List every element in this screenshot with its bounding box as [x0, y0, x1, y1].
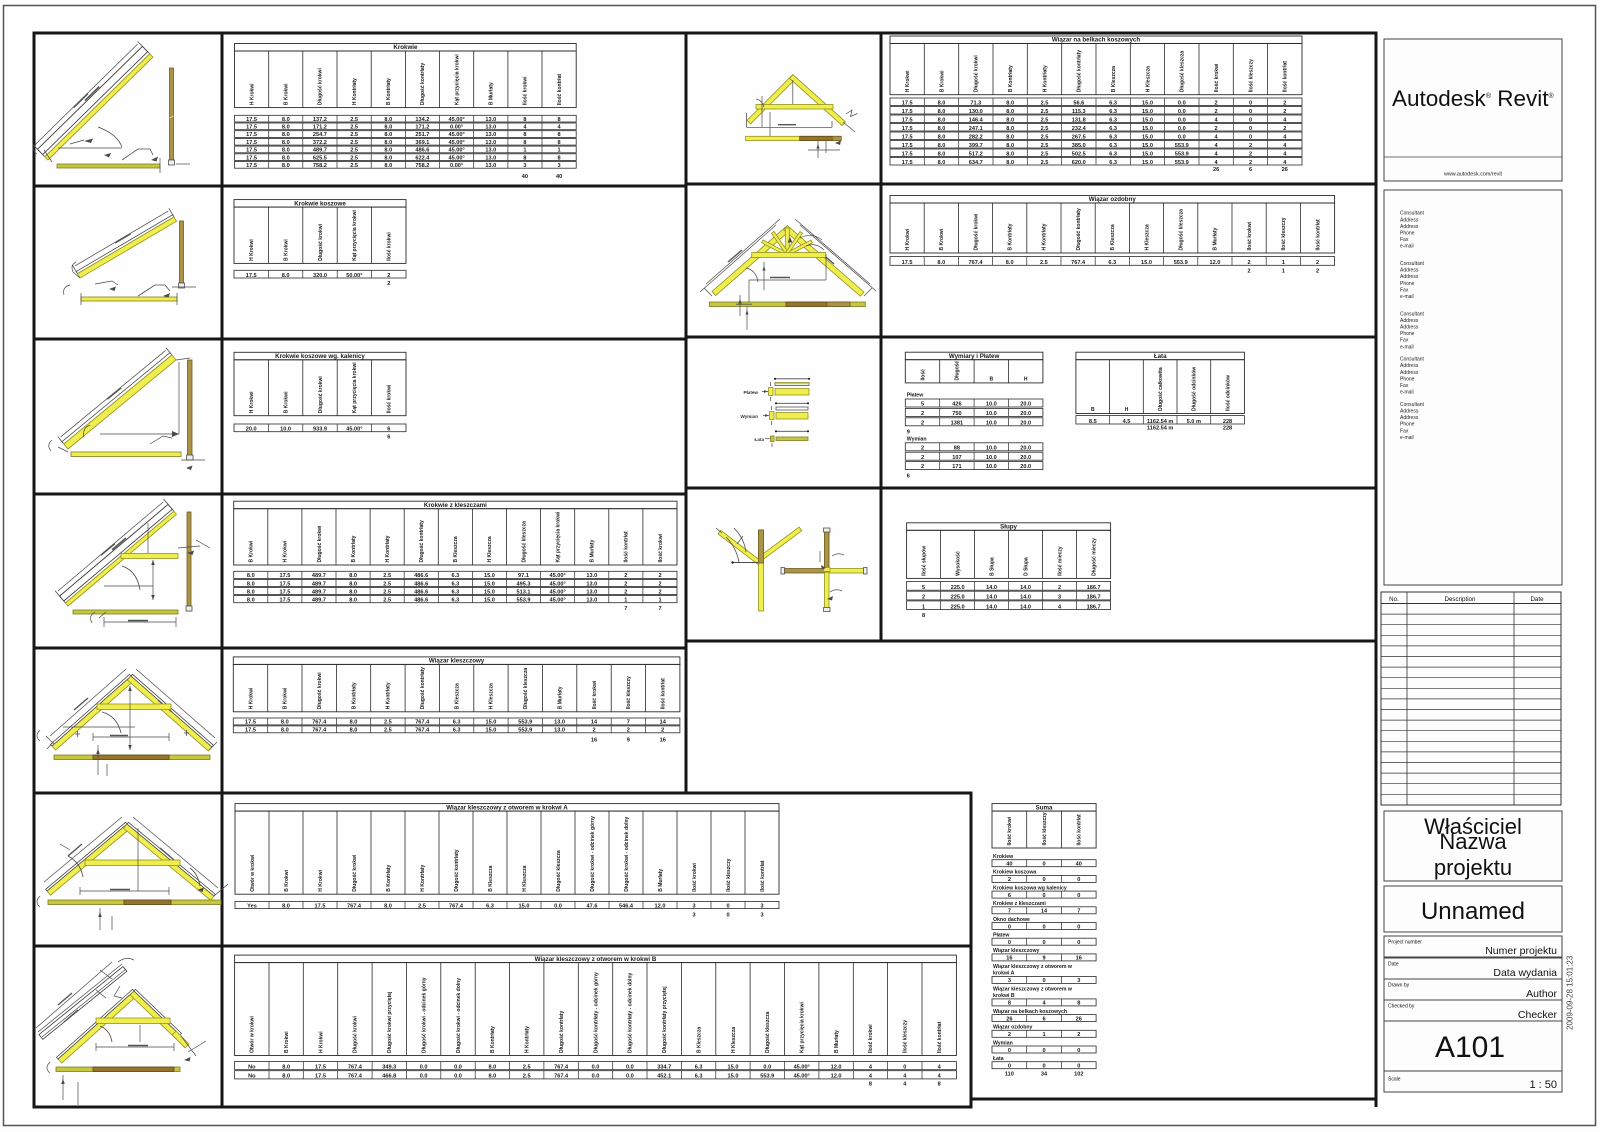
svg-text:Numer projektu: Numer projektu	[1485, 945, 1557, 957]
svg-text:2.5: 2.5	[350, 155, 358, 161]
svg-text:0: 0	[1042, 862, 1045, 868]
svg-text:40: 40	[1076, 862, 1082, 868]
svg-text:0: 0	[1249, 126, 1252, 132]
svg-text:8: 8	[558, 155, 561, 161]
svg-text:12.0: 12.0	[831, 1074, 842, 1080]
svg-text:6.3: 6.3	[1109, 134, 1117, 140]
svg-text:Address: Address	[1400, 217, 1419, 223]
svg-text:2: 2	[624, 589, 627, 595]
svg-text:Consultant: Consultant	[1400, 402, 1425, 408]
svg-text:B Krokwi: B Krokwi	[939, 70, 945, 92]
svg-text:13.0: 13.0	[485, 117, 496, 123]
svg-text:2.5: 2.5	[1041, 100, 1049, 106]
svg-text:Ilość kontrłat: Ilość kontrłat	[1315, 219, 1321, 250]
svg-text:Scale: Scale	[1388, 1077, 1401, 1083]
svg-text:Długość kontrłaty przyciętej: Długość kontrłaty przyciętej	[662, 986, 668, 1053]
svg-text:267.5: 267.5	[1072, 134, 1086, 140]
svg-text:3: 3	[1058, 595, 1061, 601]
svg-text:2: 2	[658, 581, 661, 587]
svg-text:8.0: 8.0	[247, 573, 255, 579]
svg-text:17.5: 17.5	[246, 163, 257, 169]
svg-text:2.5: 2.5	[383, 589, 391, 595]
svg-text:Phone: Phone	[1400, 231, 1415, 237]
svg-text:Autodesk® Revit®: Autodesk® Revit®	[1392, 86, 1555, 111]
svg-text:B Krokwi: B Krokwi	[249, 540, 255, 562]
svg-text:H Kleszcza: H Kleszcza	[1144, 224, 1150, 250]
svg-text:B Kontrłaty: B Kontrłaty	[490, 1026, 496, 1053]
svg-text:933.9: 933.9	[313, 427, 327, 433]
svg-text:8.0: 8.0	[384, 163, 392, 169]
svg-text:B Kontrłaty: B Kontrłaty	[351, 682, 357, 709]
svg-text:6.3: 6.3	[453, 720, 461, 726]
svg-text:45.00°: 45.00°	[549, 589, 565, 595]
svg-text:767.4: 767.4	[348, 1074, 363, 1080]
svg-text:Wiązar na belkach koszowych: Wiązar na belkach koszowych	[993, 1009, 1067, 1015]
svg-text:B: B	[989, 377, 993, 383]
svg-text:620.0: 620.0	[1072, 160, 1086, 166]
svg-text:Address: Address	[1400, 274, 1419, 280]
svg-text:B Murłaty: B Murłaty	[489, 82, 495, 105]
svg-text:8: 8	[1008, 1001, 1011, 1007]
svg-text:2: 2	[1249, 160, 1252, 166]
svg-text:8.0: 8.0	[384, 132, 392, 138]
svg-text:H Kontrłaty: H Kontrłaty	[386, 682, 392, 709]
svg-text:0: 0	[1042, 1064, 1045, 1070]
svg-text:H: H	[1024, 377, 1028, 383]
svg-text:15.0: 15.0	[484, 598, 495, 604]
svg-text:0.0: 0.0	[420, 1074, 428, 1080]
svg-text:40: 40	[556, 174, 562, 180]
svg-text:0.0: 0.0	[1178, 134, 1186, 140]
svg-text:767.4: 767.4	[1071, 260, 1086, 266]
svg-text:0: 0	[726, 903, 729, 909]
svg-text:385.0: 385.0	[1072, 143, 1086, 149]
svg-text:2.5: 2.5	[523, 1065, 531, 1071]
svg-text:Ilość kontrłat: Ilość kontrłat	[557, 74, 563, 105]
svg-text:Ilość kontrłat: Ilość kontrłat	[937, 1022, 943, 1053]
svg-text:Ilość krokwi: Ilość krokwi	[1007, 816, 1013, 845]
svg-text:Nazwa: Nazwa	[1439, 829, 1507, 854]
svg-text:Ilość krokwi: Ilość krokwi	[692, 862, 698, 891]
svg-text:Długość mieczy: Długość mieczy	[1091, 538, 1097, 576]
svg-text:10.0: 10.0	[986, 464, 997, 470]
svg-text:8.0: 8.0	[1006, 160, 1014, 166]
svg-text:16: 16	[1076, 956, 1082, 962]
svg-text:0: 0	[1042, 877, 1045, 883]
svg-text:3: 3	[760, 913, 763, 919]
svg-text:Consultant: Consultant	[1400, 311, 1425, 317]
svg-text:8.0: 8.0	[384, 148, 392, 154]
svg-text:2: 2	[592, 728, 595, 734]
svg-text:Wymian: Wymian	[740, 414, 758, 419]
svg-text:8.0: 8.0	[384, 140, 392, 146]
svg-text:767.4: 767.4	[554, 1065, 569, 1071]
svg-text:1: 1	[624, 598, 627, 604]
svg-text:8: 8	[523, 140, 526, 146]
svg-text:B Murłaty: B Murłaty	[557, 686, 563, 709]
svg-text:H Krokwi: H Krokwi	[283, 540, 289, 562]
svg-text:8.0: 8.0	[1006, 143, 1014, 149]
svg-text:krokwi A: krokwi A	[993, 971, 1015, 977]
svg-text:8.0: 8.0	[938, 151, 946, 157]
svg-text:8.0: 8.0	[282, 1065, 290, 1071]
svg-text:513.1: 513.1	[517, 589, 531, 595]
svg-text:146.4: 146.4	[969, 117, 984, 123]
svg-text:Krokiew z kleszczami: Krokiew z kleszczami	[993, 901, 1046, 907]
svg-text:320.0: 320.0	[313, 273, 327, 279]
svg-text:Kąt przycięcia krokwi: Kąt przycięcia krokwi	[352, 209, 358, 260]
svg-text:Ilość kleszczy: Ilość kleszczy	[903, 1020, 909, 1053]
svg-text:Długość krokwi: Długość krokwi	[317, 672, 323, 710]
svg-text:0.0: 0.0	[592, 1074, 600, 1080]
svg-text:2.5: 2.5	[1041, 126, 1049, 132]
svg-text:12.0: 12.0	[655, 903, 666, 909]
svg-text:232.4: 232.4	[1072, 126, 1087, 132]
svg-text:489.7: 489.7	[312, 581, 326, 587]
svg-text:Address: Address	[1400, 370, 1419, 376]
svg-text:8.0: 8.0	[938, 117, 946, 123]
svg-text:40: 40	[1006, 862, 1012, 868]
svg-text:Ilość krokwi: Ilość krokwi	[1247, 221, 1253, 250]
svg-text:0: 0	[1042, 940, 1045, 946]
svg-text:projektu: projektu	[1434, 855, 1512, 880]
svg-text:8.0: 8.0	[1006, 260, 1014, 266]
svg-text:2.5: 2.5	[350, 117, 358, 123]
svg-text:553.9: 553.9	[518, 720, 532, 726]
svg-text:45.00°: 45.00°	[794, 1065, 810, 1071]
svg-text:Krokwie z kleszczami: Krokwie z kleszczami	[424, 502, 487, 509]
svg-text:Kąt przycięcia krokwi: Kąt przycięcia krokwi	[454, 54, 460, 105]
svg-text:B Murłaty: B Murłaty	[834, 1030, 840, 1053]
svg-text:e-mail: e-mail	[1400, 344, 1414, 350]
svg-text:13.0: 13.0	[485, 155, 496, 161]
svg-text:767.4: 767.4	[312, 728, 327, 734]
svg-text:17.5: 17.5	[246, 140, 257, 146]
svg-text:8.0: 8.0	[281, 720, 289, 726]
svg-text:502.5: 502.5	[1072, 151, 1086, 157]
svg-text:5: 5	[922, 585, 925, 591]
svg-text:97.1: 97.1	[518, 573, 529, 579]
svg-text:6.3: 6.3	[1109, 126, 1117, 132]
svg-text:767.4: 767.4	[969, 260, 984, 266]
svg-text:622.4: 622.4	[415, 155, 430, 161]
svg-text:H Krokwi: H Krokwi	[248, 687, 254, 709]
svg-text:6.3: 6.3	[452, 573, 460, 579]
svg-text:Kąt przycięcia krokwi: Kąt przycięcia krokwi	[555, 511, 561, 562]
svg-text:17.5: 17.5	[902, 134, 913, 140]
svg-text:17.5: 17.5	[245, 728, 256, 734]
svg-text:Wiązar kleszczowy: Wiązar kleszczowy	[429, 658, 485, 665]
svg-text:0: 0	[1008, 1064, 1011, 1070]
svg-text:8.0: 8.0	[282, 273, 290, 279]
svg-text:8.0: 8.0	[1006, 151, 1014, 157]
svg-text:H Kleszcza: H Kleszcza	[731, 1027, 737, 1053]
svg-text:2: 2	[1249, 151, 1252, 157]
svg-text:Wiązar kleszczowy z otworem w: Wiązar kleszczowy z otworem w	[993, 986, 1073, 992]
svg-text:Długość: Długość	[955, 361, 961, 381]
svg-text:489.7: 489.7	[312, 598, 326, 604]
svg-text:2.5: 2.5	[350, 148, 358, 154]
svg-text:1162.54 m: 1162.54 m	[1147, 426, 1173, 432]
svg-text:1: 1	[1282, 260, 1285, 266]
svg-text:Author: Author	[1526, 988, 1557, 1000]
svg-text:15.0: 15.0	[1142, 160, 1153, 166]
svg-text:Długość kontrłaty: Długość kontrłaty	[419, 520, 425, 562]
svg-text:8.0: 8.0	[247, 598, 255, 604]
svg-text:17.5: 17.5	[245, 720, 256, 726]
svg-text:17.5: 17.5	[902, 260, 913, 266]
svg-text:Address: Address	[1400, 415, 1419, 421]
svg-text:17.5: 17.5	[902, 143, 913, 149]
svg-text:Ilość kontrłat: Ilość kontrłat	[760, 860, 766, 891]
svg-text:Project number: Project number	[1388, 940, 1422, 946]
svg-text:34: 34	[1041, 1071, 1048, 1077]
svg-text:1: 1	[523, 148, 526, 154]
svg-text:Długość krokwi przyciętej: Długość krokwi przyciętej	[387, 991, 393, 1053]
svg-text:Płatew: Płatew	[907, 393, 924, 399]
svg-text:16: 16	[1006, 956, 1012, 962]
svg-text:225.0: 225.0	[951, 595, 965, 601]
svg-text:Długość kleszcza: Długość kleszcza	[765, 1011, 771, 1053]
svg-text:0: 0	[1249, 134, 1252, 140]
svg-text:553.9: 553.9	[517, 598, 531, 604]
svg-text:B Krokwi: B Krokwi	[939, 228, 945, 250]
svg-text:Krokiew koszowa: Krokiew koszowa	[993, 870, 1036, 876]
svg-text:Checker: Checker	[1518, 1009, 1558, 1021]
svg-text:17.5: 17.5	[902, 109, 913, 115]
svg-text:0: 0	[1077, 893, 1080, 899]
svg-text:2: 2	[624, 581, 627, 587]
svg-text:Ilość: Ilość	[920, 369, 926, 381]
svg-text:15.0: 15.0	[1142, 117, 1153, 123]
svg-text:Długość krokwi - odcinek górny: Długość krokwi - odcinek górny	[421, 977, 427, 1053]
svg-text:171: 171	[952, 464, 961, 470]
svg-text:15.0: 15.0	[484, 573, 495, 579]
svg-text:H Krokwi: H Krokwi	[318, 869, 324, 891]
svg-text:0.0: 0.0	[454, 1074, 462, 1080]
svg-text:8.0: 8.0	[1006, 117, 1014, 123]
svg-text:2: 2	[624, 573, 627, 579]
svg-text:767.4: 767.4	[415, 720, 430, 726]
svg-text:10.0: 10.0	[986, 455, 997, 461]
svg-text:0.0: 0.0	[420, 1065, 428, 1071]
svg-text:6.3: 6.3	[452, 589, 460, 595]
svg-text:20.0: 20.0	[1020, 402, 1031, 408]
svg-text:26: 26	[1282, 167, 1288, 173]
svg-text:8.0: 8.0	[282, 117, 290, 123]
svg-text:8.0: 8.0	[350, 728, 358, 734]
svg-text:H Krokwi: H Krokwi	[249, 391, 255, 413]
svg-text:750: 750	[952, 411, 961, 417]
svg-text:758.2: 758.2	[313, 163, 327, 169]
svg-text:0: 0	[1249, 100, 1252, 106]
svg-text:6.3: 6.3	[453, 728, 461, 734]
svg-text:1: 1	[658, 598, 661, 604]
svg-text:B Kontrłaty: B Kontrłaty	[386, 865, 392, 892]
svg-text:2: 2	[1283, 100, 1286, 106]
svg-text:17.5: 17.5	[279, 573, 290, 579]
svg-text:0.0: 0.0	[554, 903, 562, 909]
svg-text:15.0: 15.0	[1142, 143, 1153, 149]
svg-text:0: 0	[1077, 924, 1080, 930]
svg-text:13.0: 13.0	[586, 573, 597, 579]
svg-text:0.00°: 0.00°	[450, 125, 463, 131]
svg-text:15.0: 15.0	[728, 1074, 739, 1080]
svg-text:Ilość krokwi: Ilość krokwi	[387, 384, 393, 413]
svg-text:0: 0	[1008, 1048, 1011, 1054]
svg-text:2.5: 2.5	[1041, 109, 1049, 115]
svg-text:517.2: 517.2	[969, 151, 983, 157]
svg-text:45.00°: 45.00°	[549, 573, 565, 579]
svg-text:0: 0	[1042, 924, 1045, 930]
svg-text:225.0: 225.0	[951, 585, 965, 591]
svg-text:Ilość kontrłat: Ilość kontrłat	[1283, 61, 1289, 92]
svg-text:102: 102	[1074, 1071, 1083, 1077]
svg-text:131.8: 131.8	[1072, 117, 1086, 123]
svg-text:2: 2	[1316, 260, 1319, 266]
svg-text:13.0: 13.0	[485, 148, 496, 154]
svg-text:8: 8	[922, 613, 925, 619]
svg-text:Kąt przycięcia krokwi: Kąt przycięcia krokwi	[352, 362, 358, 413]
svg-text:8.0: 8.0	[1006, 126, 1014, 132]
svg-text:88: 88	[954, 445, 960, 451]
svg-text:8.0: 8.0	[938, 160, 946, 166]
svg-text:15.0: 15.0	[1142, 126, 1153, 132]
svg-text:6.3: 6.3	[1109, 109, 1117, 115]
svg-text:Wiązar kleszczowy z otworem w: Wiązar kleszczowy z otworem w krokwi B	[535, 956, 657, 963]
svg-text:8: 8	[938, 1082, 941, 1088]
svg-text:171.2: 171.2	[313, 125, 327, 131]
svg-text:17.5: 17.5	[902, 160, 913, 166]
svg-text:2: 2	[921, 455, 924, 461]
svg-text:5: 5	[921, 402, 924, 408]
svg-text:2: 2	[1058, 585, 1061, 591]
svg-text:20.0: 20.0	[246, 427, 257, 433]
svg-text:1: 1	[558, 148, 561, 154]
svg-text:0: 0	[1042, 893, 1045, 899]
svg-text:1162.54 m: 1162.54 m	[1147, 419, 1173, 425]
svg-text:137.2: 137.2	[313, 117, 327, 123]
svg-text:0: 0	[1249, 109, 1252, 115]
svg-text:0.0: 0.0	[1178, 109, 1186, 115]
svg-text:Otwór w krokwi: Otwór w krokwi	[250, 1015, 256, 1053]
svg-text:e-mail: e-mail	[1400, 244, 1414, 250]
svg-text:15.0: 15.0	[1142, 134, 1153, 140]
svg-text:0: 0	[1042, 978, 1045, 984]
svg-text:489.7: 489.7	[312, 573, 326, 579]
svg-text:45.00°: 45.00°	[448, 117, 464, 123]
svg-text:Address: Address	[1400, 224, 1419, 230]
svg-text:2: 2	[1283, 126, 1286, 132]
svg-text:Kąt przycięcia krokwi: Kąt przycięcia krokwi	[800, 1002, 806, 1053]
svg-text:8.0: 8.0	[938, 126, 946, 132]
svg-text:6.3: 6.3	[695, 1065, 703, 1071]
svg-text:2009-09-28 15:01:23: 2009-09-28 15:01:23	[1566, 955, 1575, 1030]
svg-text:Yes: Yes	[247, 903, 257, 909]
svg-text:15.0: 15.0	[1142, 100, 1153, 106]
svg-text:2: 2	[921, 464, 924, 470]
svg-text:e-mail: e-mail	[1400, 435, 1414, 441]
svg-text:10.0: 10.0	[280, 427, 291, 433]
svg-text:Ilość krokwi: Ilość krokwi	[592, 680, 598, 709]
svg-text:14.0: 14.0	[986, 585, 997, 591]
svg-text:No.: No.	[1389, 596, 1399, 603]
svg-text:Długość krokwi - odcinek dolny: Długość krokwi - odcinek dolny	[456, 978, 462, 1053]
svg-text:Długość krokwi: Długość krokwi	[318, 68, 324, 106]
svg-text:16: 16	[660, 738, 666, 744]
svg-text:6: 6	[1008, 893, 1011, 899]
svg-text:13.0: 13.0	[485, 125, 496, 131]
svg-text:B Murłaty: B Murłaty	[658, 869, 664, 892]
svg-text:Wiązar ozdobny: Wiązar ozdobny	[993, 1025, 1033, 1031]
svg-text:8.0: 8.0	[937, 260, 945, 266]
svg-text:228: 228	[1223, 419, 1232, 425]
svg-text:Krokiew koszowa wg kalenicy: Krokiew koszowa wg kalenicy	[993, 885, 1067, 891]
svg-text:B Kleszcza: B Kleszcza	[1110, 224, 1116, 250]
svg-text:486.6: 486.6	[414, 573, 428, 579]
svg-text:Wysokość: Wysokość	[955, 551, 961, 576]
svg-text:186.7: 186.7	[1087, 595, 1101, 601]
svg-text:Phone: Phone	[1400, 281, 1415, 287]
svg-text:17.5: 17.5	[279, 581, 290, 587]
svg-text:3: 3	[523, 163, 526, 169]
svg-text:Ilość mieczy: Ilość mieczy	[1057, 546, 1063, 576]
svg-text:Długość krokwi - odcinek górny: Długość krokwi - odcinek górny	[590, 816, 596, 892]
svg-text:0.00°: 0.00°	[450, 163, 463, 169]
svg-text:Phone: Phone	[1400, 331, 1415, 337]
svg-text:Consultant: Consultant	[1400, 357, 1425, 363]
svg-text:Płatew: Płatew	[743, 390, 758, 395]
svg-text:14.0: 14.0	[1020, 585, 1031, 591]
svg-text:Ilość kleszczy: Ilość kleszczy	[626, 676, 632, 709]
svg-text:15.0: 15.0	[728, 1065, 739, 1071]
svg-text:Długość kontrłaty: Długość kontrłaty	[454, 849, 460, 891]
svg-text:Ilość odcinków: Ilość odcinków	[1225, 375, 1231, 411]
svg-text:8: 8	[869, 1082, 872, 1088]
svg-text:115.3: 115.3	[1072, 109, 1086, 115]
svg-text:8.0: 8.0	[384, 125, 392, 131]
svg-text:17.5: 17.5	[246, 117, 257, 123]
svg-text:3: 3	[558, 163, 561, 169]
svg-text:5.0 m: 5.0 m	[1187, 419, 1201, 425]
svg-text:B Krokwi: B Krokwi	[283, 239, 289, 261]
svg-text:6.3: 6.3	[1109, 160, 1117, 166]
svg-text:45.00°: 45.00°	[448, 155, 464, 161]
svg-text:Wiązar na belkach koszowych: Wiązar na belkach koszowych	[1052, 37, 1141, 44]
svg-text:Łata: Łata	[755, 437, 765, 442]
svg-text:20.0: 20.0	[1020, 411, 1031, 417]
svg-text:495.3: 495.3	[517, 581, 531, 587]
svg-text:B Słupa: B Słupa	[989, 557, 995, 576]
svg-text:Fax: Fax	[1400, 237, 1409, 243]
svg-text:14.0: 14.0	[1020, 595, 1031, 601]
svg-text:8.0: 8.0	[349, 598, 357, 604]
svg-text:Krokwie: Krokwie	[393, 44, 418, 51]
svg-text:10.0: 10.0	[986, 420, 997, 426]
svg-text:2.5: 2.5	[1040, 260, 1048, 266]
svg-text:B Kleszcza: B Kleszcza	[454, 683, 460, 709]
svg-text:Długość krokwi: Długość krokwi	[318, 376, 324, 414]
svg-text:130.0: 130.0	[969, 109, 983, 115]
svg-text:4.5: 4.5	[1123, 419, 1131, 425]
svg-text:6.3: 6.3	[1109, 151, 1117, 157]
svg-text:8.0: 8.0	[349, 589, 357, 595]
svg-text:B Murłaty: B Murłaty	[1213, 228, 1219, 251]
svg-text:13.0: 13.0	[586, 581, 597, 587]
svg-text:Address: Address	[1400, 363, 1419, 369]
svg-text:Consultant: Consultant	[1400, 261, 1425, 267]
svg-text:8.0: 8.0	[384, 155, 392, 161]
